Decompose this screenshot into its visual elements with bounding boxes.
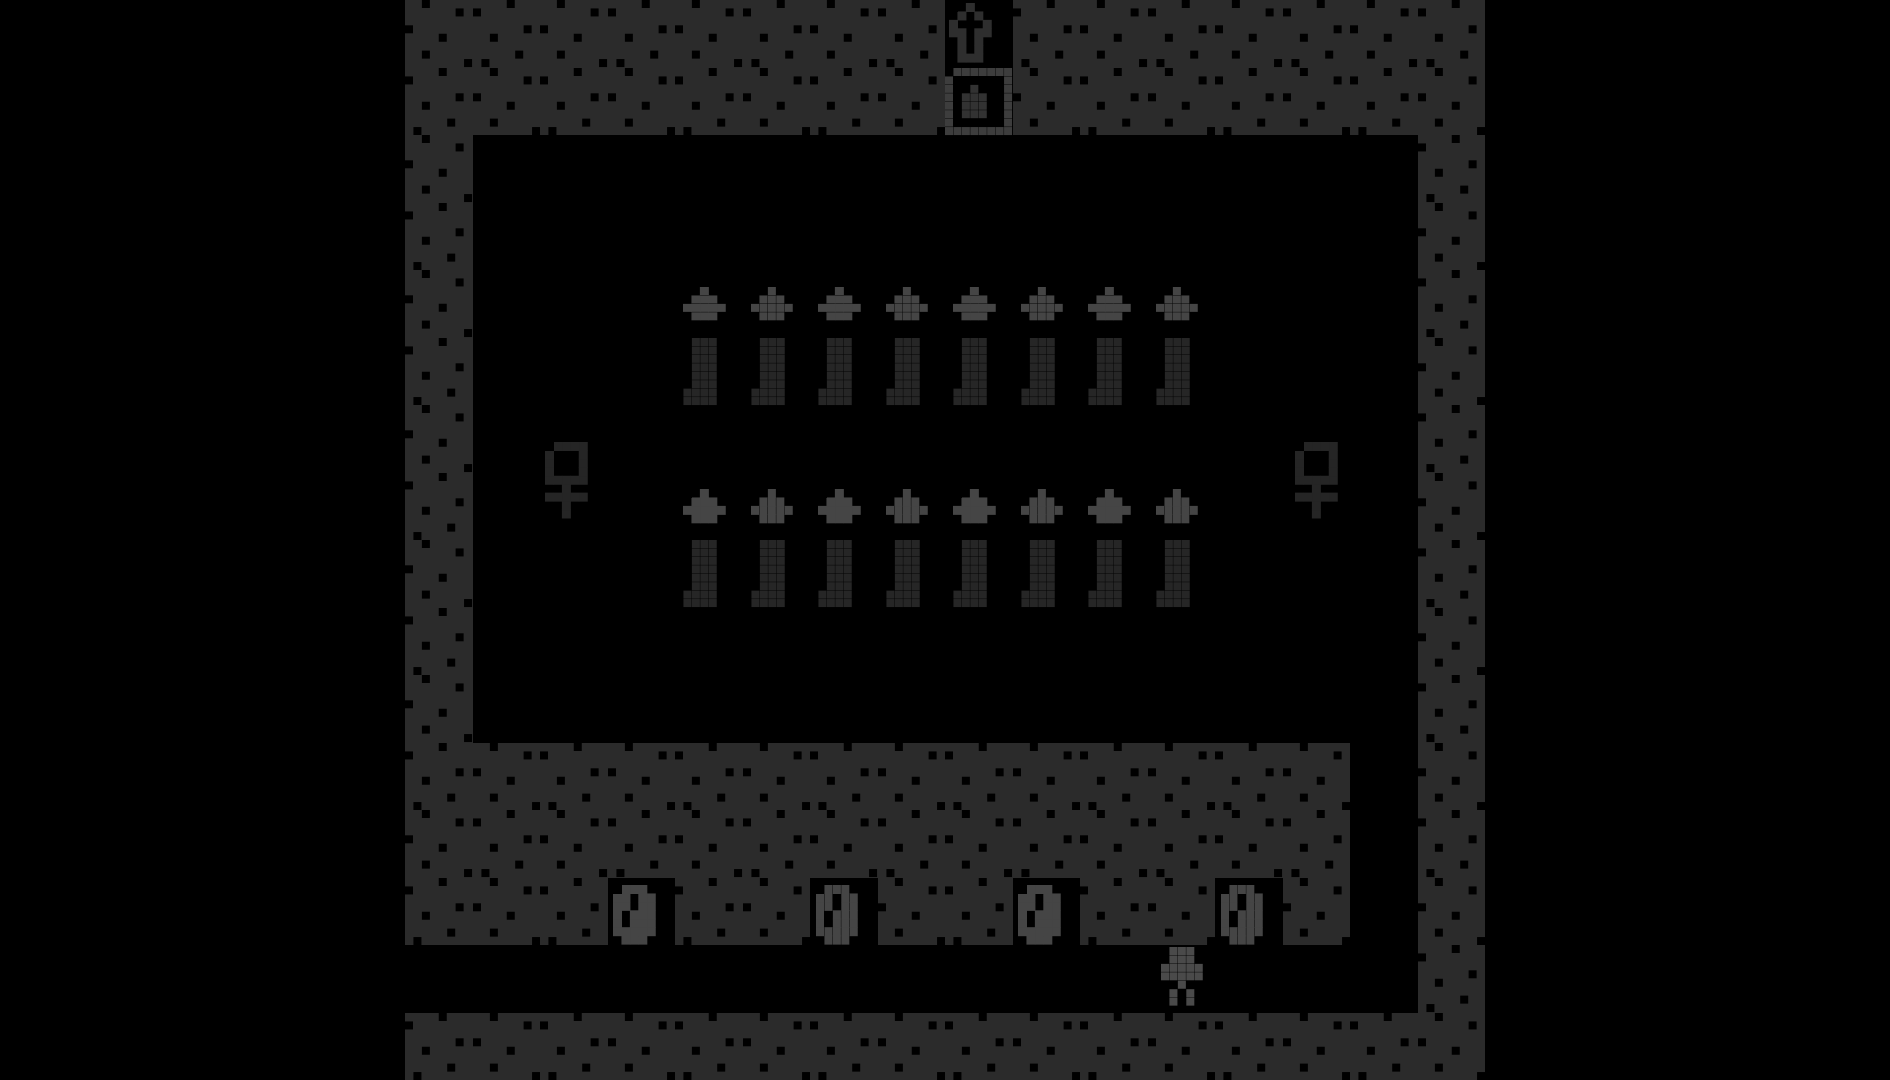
wall-tile <box>1080 878 1148 946</box>
wall-texture-dots <box>608 0 616 8</box>
candle-flame <box>818 287 826 295</box>
wall-texture-dots <box>1418 405 1426 413</box>
wall-texture-dots <box>945 878 953 886</box>
wall-tile <box>1418 473 1486 541</box>
wall-tile <box>675 810 743 878</box>
wall-tile <box>1080 0 1148 68</box>
wall-texture-dots <box>675 743 683 751</box>
wall-tile <box>540 0 608 68</box>
candle-flame <box>1021 287 1029 295</box>
candle-body <box>810 338 818 346</box>
candle-flame <box>1156 287 1164 295</box>
candle-flame <box>953 489 961 497</box>
wall-tile <box>608 68 676 136</box>
wall-texture-dots <box>405 0 413 8</box>
wall-texture-dots <box>405 878 413 886</box>
wall-tile <box>878 68 946 136</box>
wall-texture-dots <box>405 810 413 818</box>
wall-tile <box>608 0 676 68</box>
wall-texture-dots <box>1148 810 1156 818</box>
wall-tile <box>473 743 541 811</box>
wall-texture-dots <box>878 1013 886 1021</box>
wall-texture-dots <box>405 1013 413 1021</box>
wall-texture-dots <box>878 810 886 818</box>
wall-texture-dots <box>1418 810 1426 818</box>
wall-tile <box>405 608 473 676</box>
wall-texture-dots <box>945 810 953 818</box>
wall-texture-dots <box>675 878 683 886</box>
wall-texture-dots <box>1080 810 1088 818</box>
wall-texture-dots <box>1013 743 1021 751</box>
wall-texture-dots <box>1013 810 1021 818</box>
wall-tile <box>1418 1013 1486 1080</box>
wall-texture-dots <box>1418 608 1426 616</box>
wall-texture-dots <box>1283 1013 1291 1021</box>
wall-texture-dots <box>1418 338 1426 346</box>
wall-tile <box>405 473 473 541</box>
candle-body <box>743 540 751 548</box>
wall-texture-dots <box>1418 1013 1426 1021</box>
wall-tile <box>743 878 811 946</box>
wall-tile <box>1283 1013 1351 1080</box>
wall-tile <box>1080 68 1148 136</box>
wall-tile <box>608 743 676 811</box>
wall-texture-dots <box>810 810 818 818</box>
wall-tile <box>405 338 473 406</box>
wall-tile <box>1418 203 1486 271</box>
wall-texture-dots <box>675 810 683 818</box>
wall-texture-dots <box>405 68 413 76</box>
candle-flame <box>1088 489 1096 497</box>
candle-flame <box>683 287 691 295</box>
wall-texture-dots <box>675 68 683 76</box>
candle-flame <box>683 489 691 497</box>
wall-tile <box>1148 878 1216 946</box>
wall-texture-dots <box>405 540 413 548</box>
candle-body <box>945 540 953 548</box>
wall-tile <box>1148 810 1216 878</box>
wall-texture-dots <box>1148 878 1156 886</box>
wall-tile <box>540 878 608 946</box>
wall-tile <box>540 810 608 878</box>
wall-tile <box>1013 68 1081 136</box>
wall-texture-dots <box>1418 135 1426 143</box>
wall-texture-dots <box>1148 68 1156 76</box>
wall-tile <box>1418 135 1486 203</box>
candle-body <box>1148 540 1156 548</box>
wall-tile <box>1283 810 1351 878</box>
wall-texture-dots <box>405 405 413 413</box>
wall-texture-dots <box>405 473 413 481</box>
wall-tile <box>473 810 541 878</box>
wall-tile <box>1283 68 1351 136</box>
wall-texture-dots <box>608 810 616 818</box>
wall-texture-dots <box>1418 68 1426 76</box>
wall-texture-dots <box>945 1013 953 1021</box>
wall-tile <box>405 675 473 743</box>
candle-body <box>810 540 818 548</box>
mirror-figure-right <box>1295 442 1303 450</box>
wall-texture-dots <box>405 608 413 616</box>
candle-body <box>945 338 953 346</box>
wall-texture-dots <box>878 743 886 751</box>
wall-texture-dots <box>473 810 481 818</box>
wall-texture-dots <box>608 743 616 751</box>
mirror-figure-left <box>545 442 553 450</box>
wall-tile <box>945 878 1013 946</box>
wall-tile <box>1418 68 1486 136</box>
wall-texture-dots <box>810 743 818 751</box>
wall-tile <box>405 1013 473 1080</box>
wall-tile <box>810 68 878 136</box>
wall-texture-dots <box>608 68 616 76</box>
wall-tile <box>405 743 473 811</box>
wall-texture-dots <box>1013 1013 1021 1021</box>
wall-texture-dots <box>1215 68 1223 76</box>
wall-texture-dots <box>1215 810 1223 818</box>
wall-texture-dots <box>540 810 548 818</box>
candle-body <box>1013 338 1021 346</box>
player-avatar <box>1161 947 1169 955</box>
wall-texture-dots <box>1080 743 1088 751</box>
wall-texture-dots <box>1418 945 1426 953</box>
wall-tile <box>743 810 811 878</box>
wall-tile <box>1350 68 1418 136</box>
wall-tile <box>1418 743 1486 811</box>
wall-texture-dots <box>1013 0 1021 8</box>
wall-tile <box>675 878 743 946</box>
wall-texture-dots <box>473 878 481 886</box>
wall-tile <box>1418 945 1486 1013</box>
wall-tile <box>1418 270 1486 338</box>
candle-body <box>675 338 683 346</box>
wall-texture-dots <box>1350 0 1358 8</box>
wall-texture-dots <box>1418 0 1426 8</box>
wall-texture-dots <box>405 675 413 683</box>
wall-tile <box>675 68 743 136</box>
candle-body <box>1013 540 1021 548</box>
wall-tile <box>1148 68 1216 136</box>
wall-texture-dots <box>540 68 548 76</box>
candle-body <box>878 338 886 346</box>
wall-tile <box>405 135 473 203</box>
wall-tile <box>743 743 811 811</box>
wall-texture-dots <box>743 68 751 76</box>
wall-tile <box>540 1013 608 1080</box>
wall-texture-dots <box>1283 0 1291 8</box>
wall-tile <box>473 68 541 136</box>
candle-body <box>1080 338 1088 346</box>
wall-tile <box>1350 0 1418 68</box>
candle-body <box>878 540 886 548</box>
candle-body <box>1148 338 1156 346</box>
wall-tile <box>405 68 473 136</box>
wall-tile <box>878 878 946 946</box>
slashed-zero-marker <box>816 885 824 893</box>
entrance-arrow-icon <box>949 3 957 11</box>
wall-tile <box>878 1013 946 1080</box>
wall-tile <box>1148 1013 1216 1080</box>
candle-body <box>1080 540 1088 548</box>
wall-tile <box>1148 743 1216 811</box>
game-viewport <box>0 0 1890 1080</box>
wall-texture-dots <box>540 0 548 8</box>
wall-tile <box>405 203 473 271</box>
wall-texture-dots <box>810 1013 818 1021</box>
wall-tile <box>405 540 473 608</box>
wall-tile <box>1283 0 1351 68</box>
wall-tile <box>1013 810 1081 878</box>
wall-tile <box>540 743 608 811</box>
wall-texture-dots <box>540 878 548 886</box>
wall-texture-dots <box>810 68 818 76</box>
wall-tile <box>608 1013 676 1080</box>
candle-flame <box>886 287 894 295</box>
wall-texture-dots <box>1350 68 1358 76</box>
wall-tile <box>1418 608 1486 676</box>
wall-tile <box>1418 0 1486 68</box>
wall-tile <box>1215 0 1283 68</box>
wall-texture-dots <box>473 0 481 8</box>
wall-texture-dots <box>473 1013 481 1021</box>
wall-tile <box>1418 405 1486 473</box>
wall-tile <box>810 0 878 68</box>
wall-texture-dots <box>473 743 481 751</box>
wall-tile <box>743 1013 811 1080</box>
wall-texture-dots <box>878 0 886 8</box>
wall-texture-dots <box>1215 743 1223 751</box>
candle-flame <box>751 489 759 497</box>
wall-tile <box>608 810 676 878</box>
wall-tile <box>473 1013 541 1080</box>
wall-texture-dots <box>743 1013 751 1021</box>
wall-tile <box>473 878 541 946</box>
wall-tile <box>405 270 473 338</box>
candle-body <box>743 338 751 346</box>
wall-texture-dots <box>473 68 481 76</box>
wall-texture-dots <box>1418 270 1426 278</box>
wall-tile <box>675 0 743 68</box>
wall-texture-dots <box>1080 1013 1088 1021</box>
wall-texture-dots <box>540 1013 548 1021</box>
wall-texture-dots <box>1080 68 1088 76</box>
wall-texture-dots <box>675 0 683 8</box>
wall-tile <box>1283 878 1351 946</box>
wall-texture-dots <box>1418 540 1426 548</box>
wall-texture-dots <box>1215 1013 1223 1021</box>
candle-flame <box>1156 489 1164 497</box>
wall-texture-dots <box>405 743 413 751</box>
wall-texture-dots <box>1148 1013 1156 1021</box>
wall-tile <box>405 810 473 878</box>
wall-tile <box>405 0 473 68</box>
wall-texture-dots <box>405 203 413 211</box>
wall-texture-dots <box>1148 0 1156 8</box>
candle-flame <box>818 489 826 497</box>
wall-texture-dots <box>878 878 886 886</box>
slashed-zero-marker <box>1018 885 1026 893</box>
wall-texture-dots <box>405 135 413 143</box>
wall-tile <box>810 1013 878 1080</box>
wall-texture-dots <box>743 743 751 751</box>
game-stage[interactable] <box>405 0 1485 1080</box>
wall-tile <box>1013 0 1081 68</box>
candle-body <box>675 540 683 548</box>
wall-tile <box>1215 1013 1283 1080</box>
wall-texture-dots <box>675 1013 683 1021</box>
wall-tile <box>1013 1013 1081 1080</box>
candle-flame <box>1021 489 1029 497</box>
wall-texture-dots <box>1283 68 1291 76</box>
wall-tile <box>810 810 878 878</box>
candle-flame <box>1088 287 1096 295</box>
wall-tile <box>743 68 811 136</box>
wall-texture-dots <box>608 1013 616 1021</box>
candle-flame <box>886 489 894 497</box>
wall-tile <box>1418 540 1486 608</box>
wall-texture-dots <box>1418 743 1426 751</box>
wall-tile <box>945 810 1013 878</box>
wall-tile <box>405 405 473 473</box>
wall-tile <box>810 743 878 811</box>
wall-tile <box>1418 338 1486 406</box>
wall-texture-dots <box>743 810 751 818</box>
wall-tile <box>1350 1013 1418 1080</box>
wall-texture-dots <box>1283 743 1291 751</box>
wall-texture-dots <box>1283 810 1291 818</box>
wall-tile <box>1215 743 1283 811</box>
wall-tile <box>1080 1013 1148 1080</box>
wall-texture-dots <box>945 743 953 751</box>
wall-tile <box>1215 68 1283 136</box>
wall-tile <box>1013 743 1081 811</box>
wall-texture-dots <box>1013 68 1021 76</box>
wall-tile <box>675 743 743 811</box>
wall-tile <box>878 810 946 878</box>
candle-flame <box>953 287 961 295</box>
candle-flame <box>751 287 759 295</box>
crate-item-icon <box>945 68 953 76</box>
wall-texture-dots <box>878 68 886 76</box>
wall-texture-dots <box>1350 1013 1358 1021</box>
wall-texture-dots <box>810 0 818 8</box>
wall-tile <box>945 1013 1013 1080</box>
wall-tile <box>1215 810 1283 878</box>
wall-texture-dots <box>405 338 413 346</box>
wall-texture-dots <box>1283 878 1291 886</box>
wall-tile <box>1283 743 1351 811</box>
wall-tile <box>473 0 541 68</box>
wall-texture-dots <box>405 270 413 278</box>
wall-texture-dots <box>743 0 751 8</box>
wall-texture-dots <box>540 743 548 751</box>
wall-texture-dots <box>1080 0 1088 8</box>
wall-tile <box>878 0 946 68</box>
wall-tile <box>405 878 473 946</box>
wall-texture-dots <box>1418 878 1426 886</box>
wall-tile <box>743 0 811 68</box>
wall-tile <box>1418 810 1486 878</box>
wall-tile <box>1148 0 1216 68</box>
wall-texture-dots <box>1418 675 1426 683</box>
wall-tile <box>1080 743 1148 811</box>
wall-tile <box>1418 878 1486 946</box>
wall-texture-dots <box>1215 0 1223 8</box>
slashed-zero-marker <box>613 885 621 893</box>
wall-texture-dots <box>1418 203 1426 211</box>
wall-texture-dots <box>743 878 751 886</box>
wall-tile <box>1080 810 1148 878</box>
wall-texture-dots <box>1080 878 1088 886</box>
wall-tile <box>540 68 608 136</box>
wall-tile <box>878 743 946 811</box>
wall-tile <box>945 743 1013 811</box>
wall-tile <box>675 1013 743 1080</box>
wall-tile <box>1418 675 1486 743</box>
wall-texture-dots <box>1148 743 1156 751</box>
slashed-zero-marker <box>1221 885 1229 893</box>
wall-texture-dots <box>1418 473 1426 481</box>
